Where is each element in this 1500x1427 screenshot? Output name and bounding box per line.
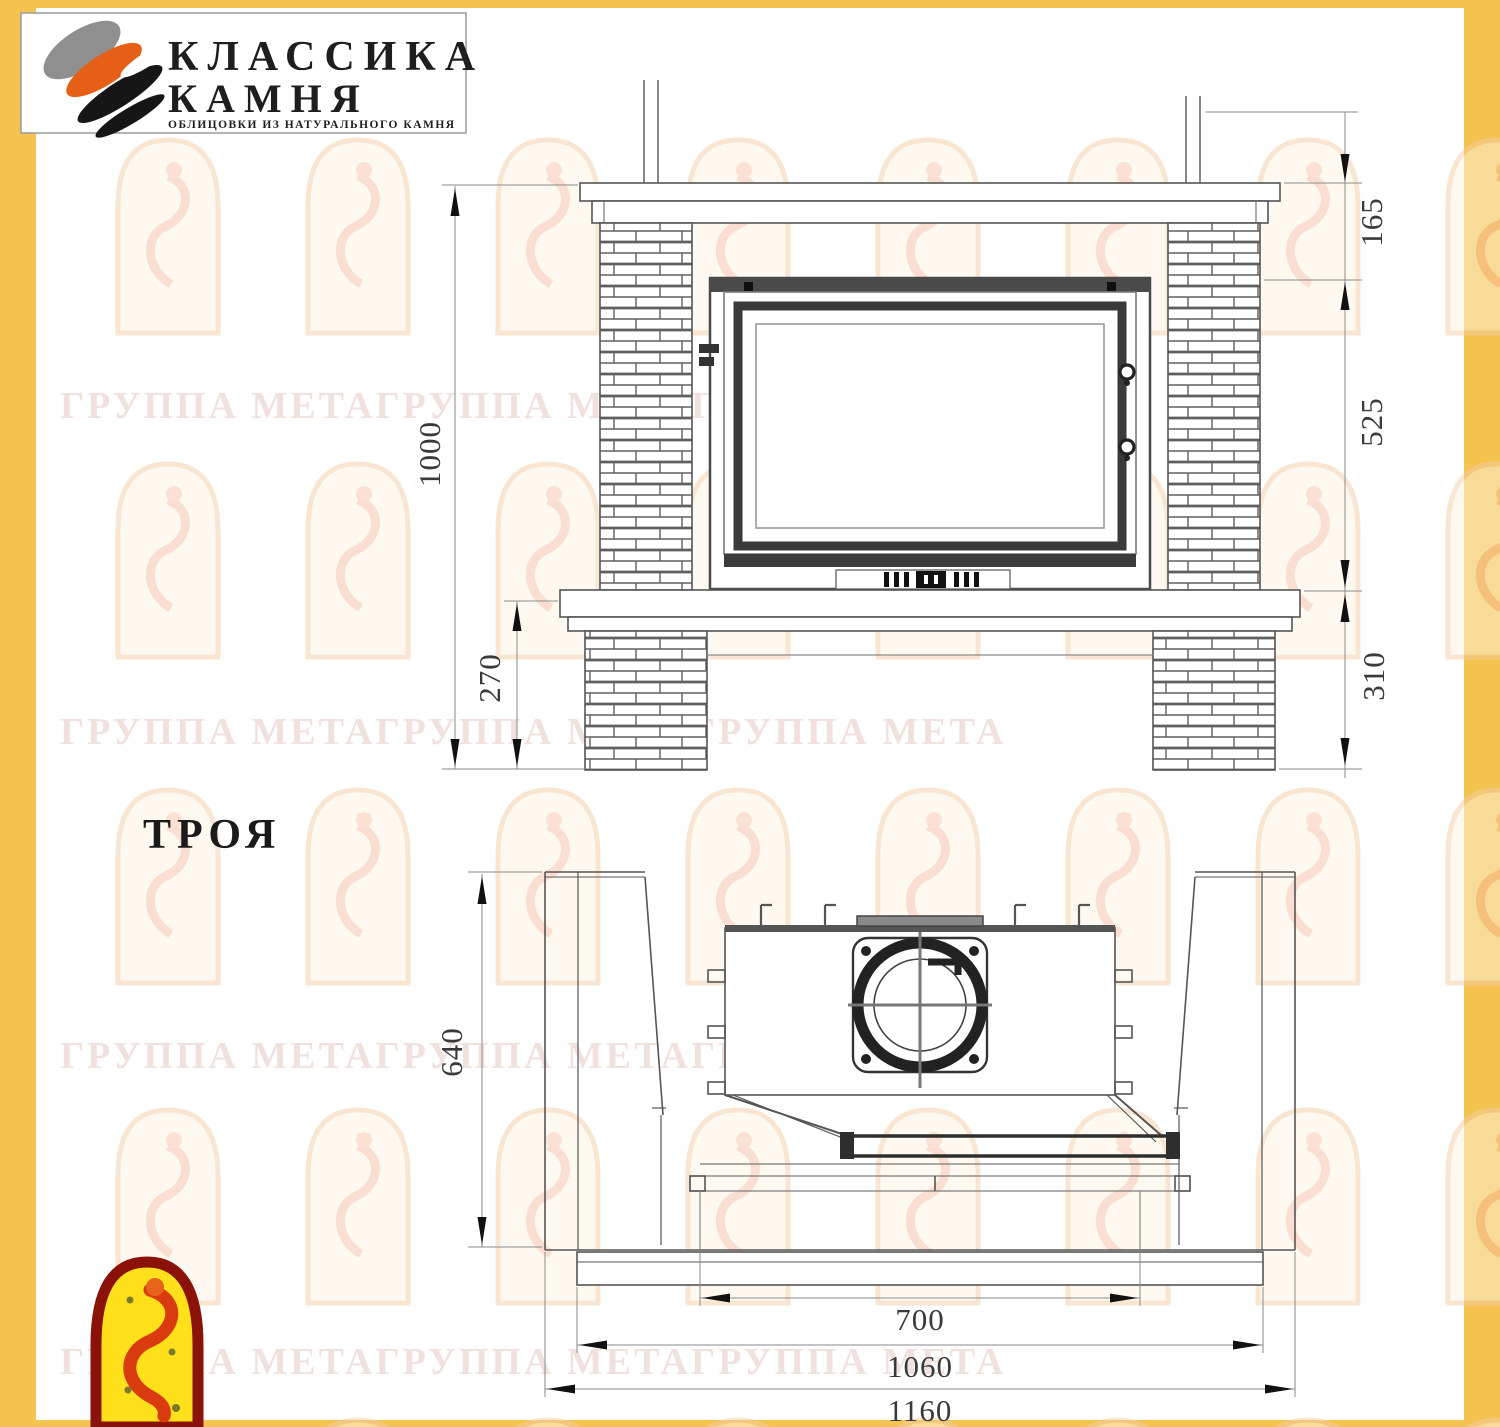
arch-watermark [1258, 790, 1358, 983]
logo-subtitle: ОБЛИЦОВКИ ИЗ НАТУРАЛЬНОГО КАМНЯ [168, 119, 456, 131]
arch-watermark [308, 1110, 408, 1303]
dim-top-band: 165 [1354, 197, 1389, 247]
dim-base-height: 310 [1356, 651, 1391, 701]
brick-column-left [600, 223, 692, 590]
hearth-slab [560, 590, 1300, 617]
logo-title-line1: КЛАССИКА [168, 34, 484, 80]
arch-watermark [308, 140, 408, 333]
plan-base-slab [577, 1252, 1263, 1285]
arch-watermark [498, 140, 598, 333]
arch-watermark [1448, 464, 1500, 657]
corner-arch-logo [96, 1262, 198, 1427]
arch-watermark [308, 790, 408, 983]
arch-watermark [1448, 1110, 1500, 1303]
arch-watermark [118, 140, 218, 333]
mantel-shelf-top [580, 183, 1280, 201]
dim-depth: 640 [434, 1027, 469, 1077]
fireplace-drawing-sheet: ГРУППА МЕТАГРУППА МЕТАГРУППА МЕТА ГРУППА… [0, 0, 1500, 1427]
firebox-insert [699, 278, 1150, 589]
mantel-shelf-step [592, 201, 1268, 223]
hearth-slab-step [568, 617, 1292, 631]
dim-total-height: 1000 [412, 421, 447, 487]
pedestal-right [1153, 631, 1275, 770]
watermark-row: ГРУППА МЕТАГРУППА МЕТАГРУППА МЕТА [60, 711, 1007, 753]
arch-watermark [1448, 140, 1500, 333]
brick-column-right [1168, 223, 1260, 590]
arch-watermark [1448, 790, 1500, 983]
dim-pedestal-height: 270 [472, 653, 507, 703]
dim-opening-width: 700 [895, 1302, 945, 1337]
arch-watermark [498, 790, 598, 983]
arch-watermark [118, 464, 218, 657]
logo-title-line2: КАМНЯ [168, 76, 369, 121]
dim-firebox-height: 525 [1354, 397, 1389, 447]
dim-inner-width: 1060 [887, 1349, 953, 1384]
firebox-door-frame [738, 306, 1122, 546]
model-name: ТРОЯ [143, 812, 281, 858]
flue-collar-plate [857, 916, 983, 926]
pedestal-left [585, 631, 707, 770]
arch-watermark [308, 464, 408, 657]
dim-overall-width: 1160 [888, 1393, 953, 1427]
figure-head [146, 1278, 164, 1296]
mount-tab-left [744, 282, 753, 291]
arch-watermark [1258, 1110, 1358, 1303]
mount-tab-right [1107, 282, 1116, 291]
company-logo: КЛАССИКА КАМНЯ ОБЛИЦОВКИ ИЗ НАТУРАЛЬНОГО… [21, 9, 484, 143]
